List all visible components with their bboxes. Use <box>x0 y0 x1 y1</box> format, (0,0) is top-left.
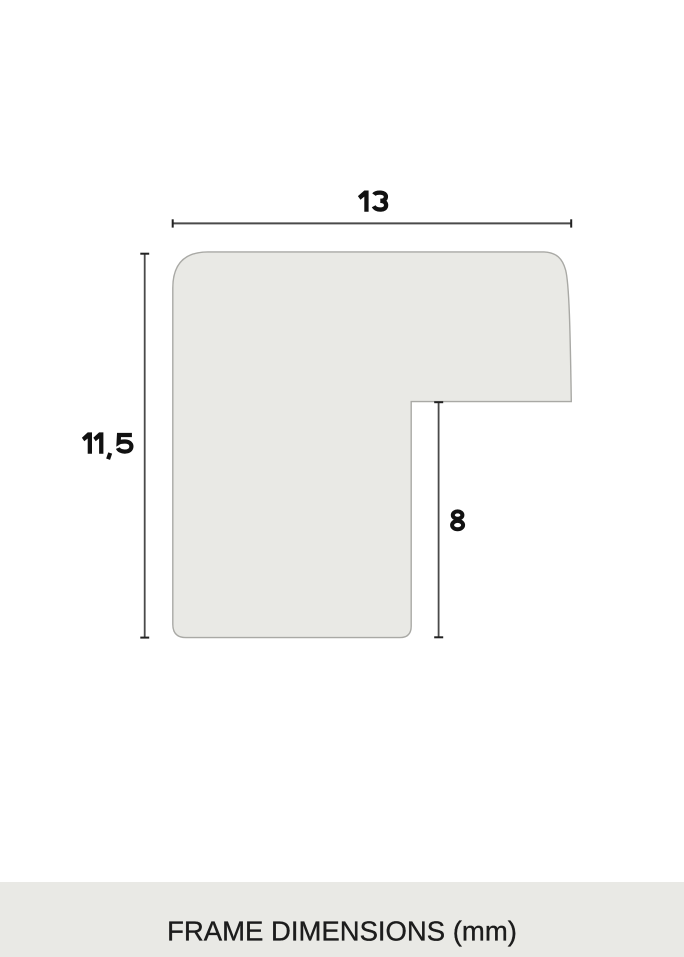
svg-text:FRAME DIMENSIONS (mm): FRAME DIMENSIONS (mm) <box>167 915 517 946</box>
